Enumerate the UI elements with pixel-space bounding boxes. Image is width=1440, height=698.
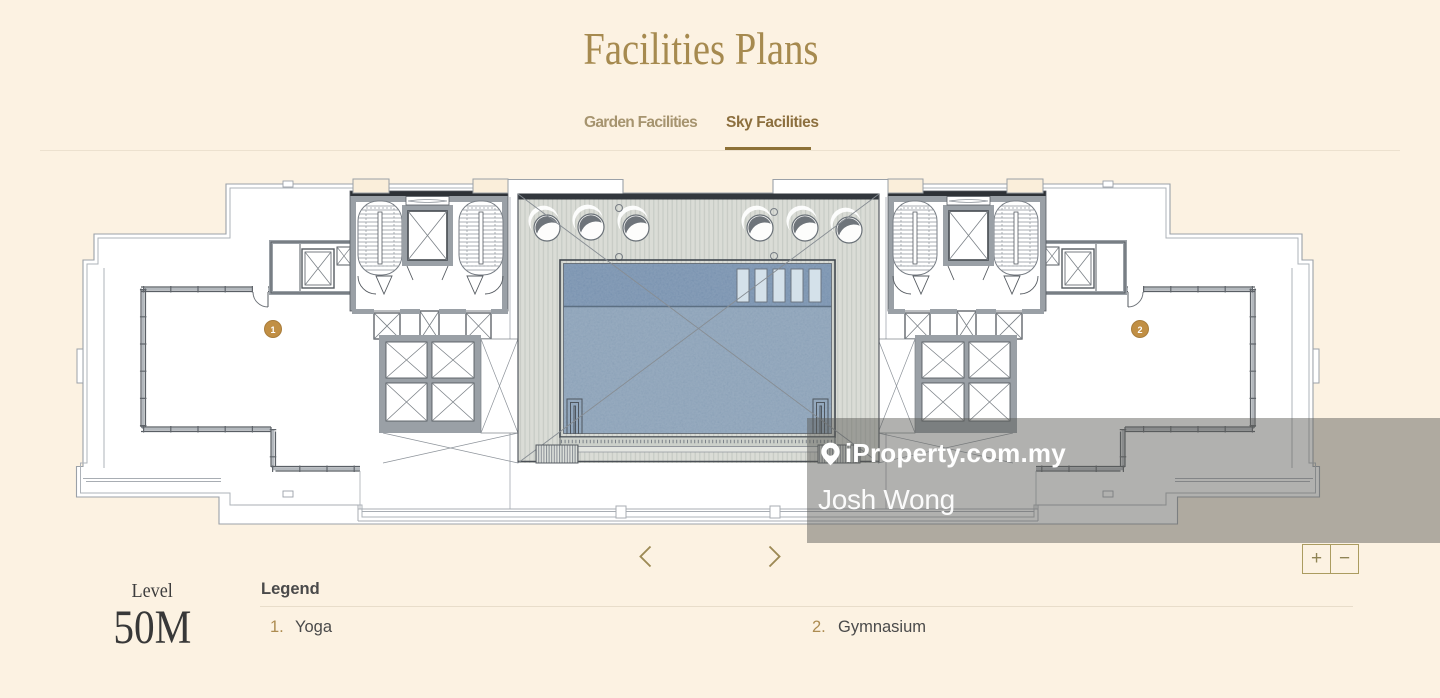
svg-text:1: 1: [270, 325, 275, 335]
svg-text:2: 2: [1137, 325, 1142, 335]
